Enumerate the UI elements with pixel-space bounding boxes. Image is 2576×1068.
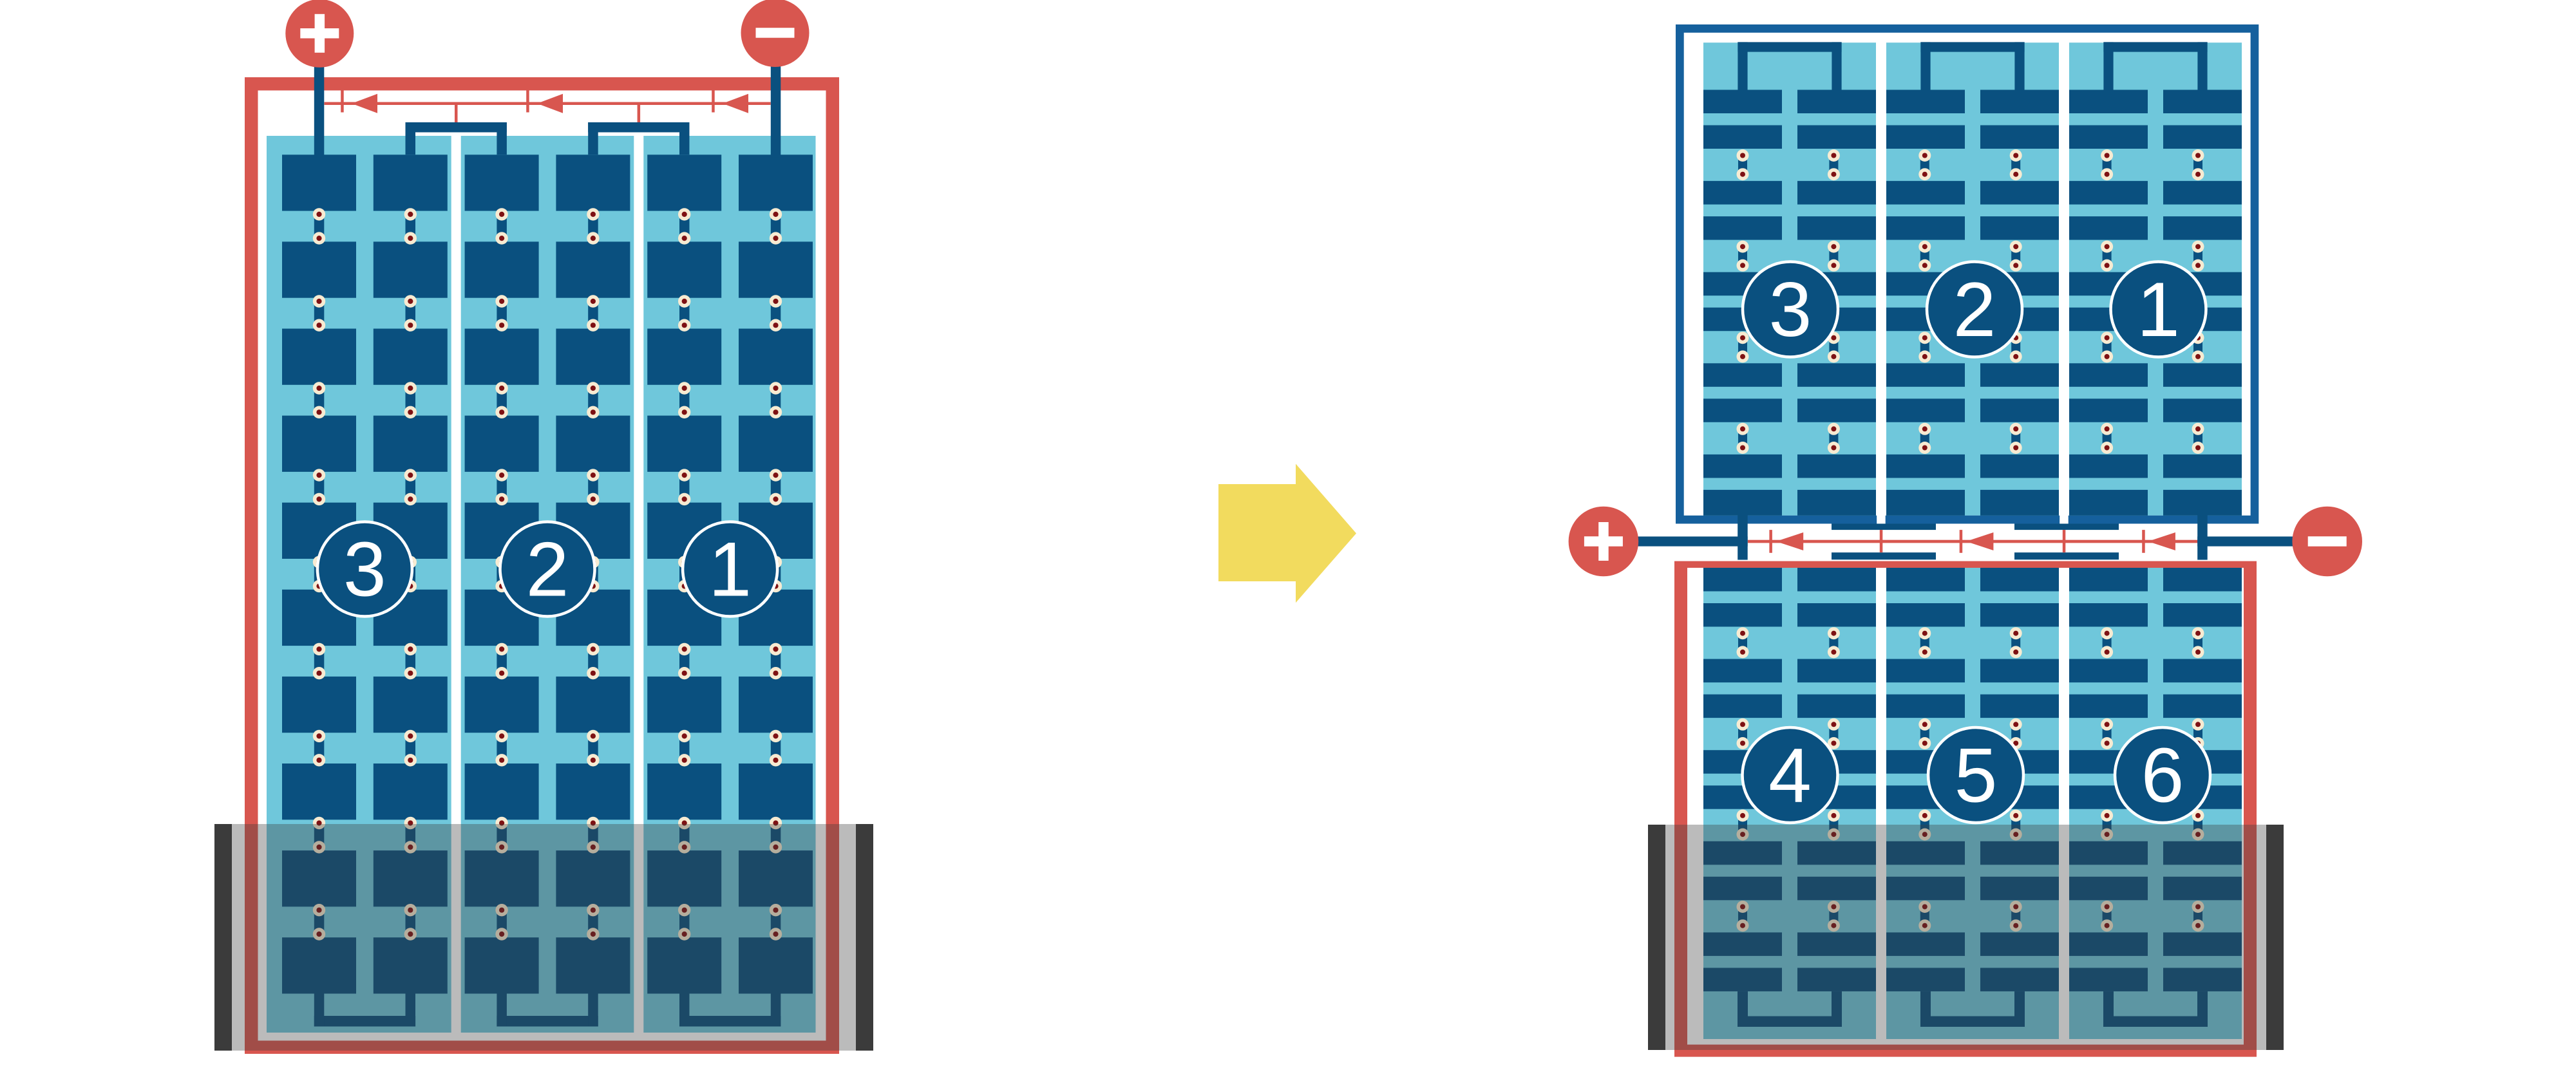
svg-text:4: 4 [1768,732,1812,818]
svg-text:6: 6 [2141,732,2184,818]
svg-text:1: 1 [2137,267,2180,353]
svg-text:5: 5 [1955,732,1998,818]
svg-text:2: 2 [526,526,569,612]
svg-text:2: 2 [1953,267,1996,353]
svg-text:1: 1 [708,526,752,612]
svg-text:3: 3 [343,526,386,612]
svg-text:3: 3 [1769,267,1812,353]
